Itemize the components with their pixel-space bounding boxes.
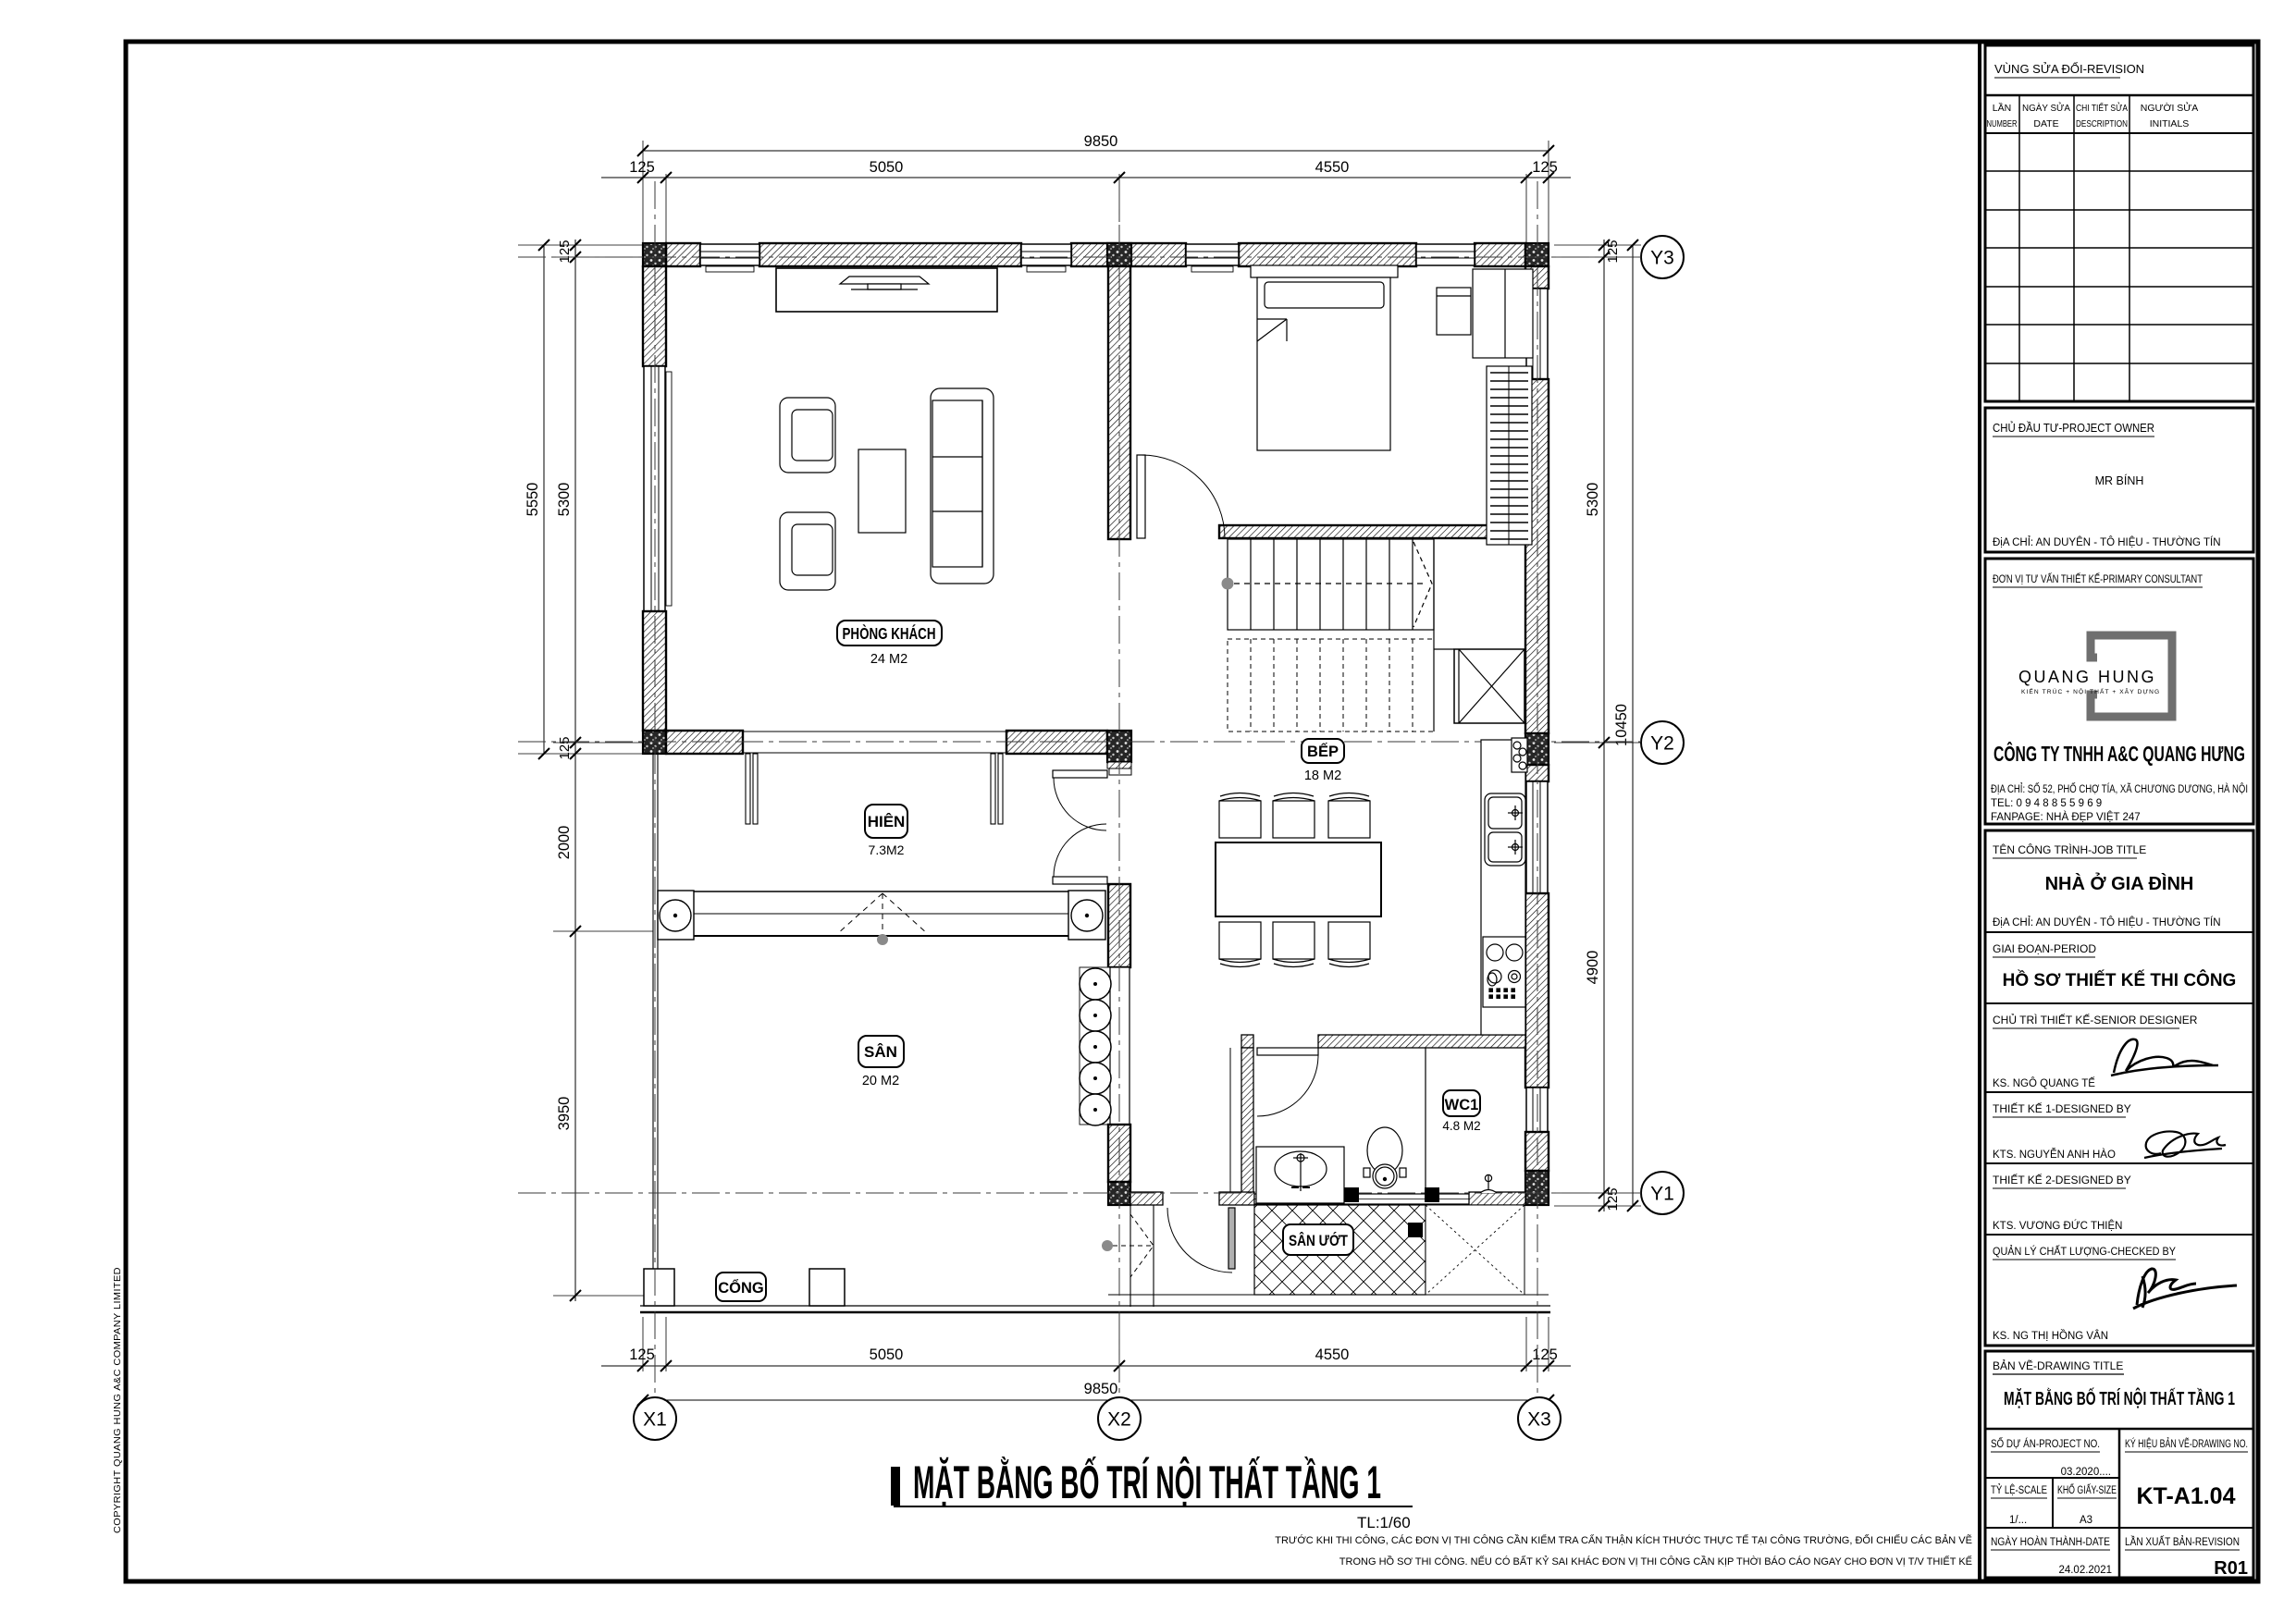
- svg-text:TEL: 0 9 4 8 8 5 5 9 6 9: TEL: 0 9 4 8 8 5 5 9 6 9: [1991, 798, 2102, 809]
- svg-text:VÙNG SỬA ĐỔI-REVISION: VÙNG SỬA ĐỔI-REVISION: [1994, 62, 2144, 76]
- svg-text:5550: 5550: [525, 483, 541, 517]
- svg-text:PHÒNG KHÁCH: PHÒNG KHÁCH: [843, 623, 936, 643]
- svg-text:SÂN: SÂN: [864, 1043, 897, 1061]
- svg-text:NHÀ Ở GIA ĐÌNH: NHÀ Ở GIA ĐÌNH: [2045, 872, 2194, 894]
- svg-text:SÂN ƯỚT: SÂN ƯỚT: [1289, 1232, 1348, 1249]
- svg-text:1/...: 1/...: [2009, 1515, 2027, 1526]
- svg-text:ĐỊA CHỈ: SỐ 52, PHỐ CHỢ TÍA, X: ĐỊA CHỈ: SỐ 52, PHỐ CHỢ TÍA, XÃ CHƯƠNG D…: [1991, 782, 2248, 795]
- svg-text:KHỔ GIẤY-SIZE: KHỔ GIẤY-SIZE: [2057, 1484, 2117, 1496]
- svg-text:4900: 4900: [1585, 951, 1601, 985]
- svg-text:R01: R01: [2214, 1558, 2248, 1579]
- svg-text:BẢN VẼ-DRAWING TITLE: BẢN VẼ-DRAWING TITLE: [1993, 1359, 2123, 1372]
- svg-text:X1: X1: [643, 1409, 667, 1431]
- svg-text:A3: A3: [2080, 1515, 2092, 1526]
- svg-text:KT-A1.04: KT-A1.04: [2137, 1483, 2236, 1509]
- svg-text:20 M2: 20 M2: [862, 1074, 899, 1088]
- svg-text:Y1: Y1: [1650, 1184, 1674, 1205]
- svg-text:125: 125: [1605, 1187, 1621, 1211]
- svg-text:DESCRIPTION: DESCRIPTION: [2076, 118, 2128, 129]
- svg-text:24.02.2021: 24.02.2021: [2058, 1565, 2112, 1576]
- svg-text:4550: 4550: [1315, 159, 1350, 176]
- svg-text:KS. NG THỊ HỒNG VÂN: KS. NG THỊ HỒNG VÂN: [1993, 1330, 2108, 1342]
- svg-text:ĐƠN VỊ TƯ VẤN THIẾT KẾ-PRIMARY: ĐƠN VỊ TƯ VẤN THIẾT KẾ-PRIMARY CONSULTAN…: [1993, 572, 2203, 585]
- svg-text:ĐịA CHỈ: AN DUYÊN - TÔ HIỆU -: ĐịA CHỈ: AN DUYÊN - TÔ HIỆU - THƯỜNG TÍN: [1993, 916, 2221, 928]
- svg-text:TL:1/60: TL:1/60: [1357, 1514, 1411, 1531]
- svg-text:THIẾT KẾ 2-DESIGNED BY: THIẾT KẾ 2-DESIGNED BY: [1993, 1173, 2131, 1187]
- svg-text:QUẢN LÝ CHẤT LƯỢNG-CHECKED BY: QUẢN LÝ CHẤT LƯỢNG-CHECKED BY: [1993, 1244, 2176, 1258]
- svg-text:FANPAGE: NHÀ ĐẸP VIỆT 247: FANPAGE: NHÀ ĐẸP VIỆT 247: [1991, 811, 2141, 823]
- svg-text:TÊN CÔNG TRÌNH-JOB TITLE: TÊN CÔNG TRÌNH-JOB TITLE: [1993, 842, 2146, 856]
- svg-text:7.3M2: 7.3M2: [869, 842, 905, 857]
- svg-text:18 M2: 18 M2: [1304, 768, 1341, 783]
- svg-text:THIẾT KẾ 1-DESIGNED BY: THIẾT KẾ 1-DESIGNED BY: [1993, 1101, 2131, 1115]
- svg-text:CHI TIẾT SỬA: CHI TIẾT SỬA: [2076, 102, 2128, 114]
- svg-text:Y2: Y2: [1650, 733, 1674, 755]
- svg-text:KÝ HIỆU BẢN VẼ-DRAWING NO.: KÝ HIỆU BẢN VẼ-DRAWING NO.: [2125, 1438, 2248, 1450]
- svg-text:HIÊN: HIÊN: [868, 813, 906, 830]
- svg-text:125: 125: [1532, 1346, 1558, 1363]
- svg-text:BẾP: BẾP: [1307, 743, 1339, 760]
- svg-text:COPYRIGHT QUANG HUNG A&C COMPA: COPYRIGHT QUANG HUNG A&C COMPANY LIMITED: [112, 1267, 123, 1533]
- svg-text:LẦN: LẦN: [1993, 102, 2011, 114]
- svg-text:TỶ LỆ-SCALE: TỶ LỆ-SCALE: [1991, 1484, 2047, 1496]
- svg-text:KTS. VƯƠNG ĐỨC THIỆN: KTS. VƯƠNG ĐỨC THIỆN: [1993, 1220, 2122, 1232]
- svg-text:125: 125: [557, 240, 573, 263]
- svg-text:5050: 5050: [870, 159, 904, 176]
- svg-text:CHỦ ĐẦU TƯ-PROJECT OWNER: CHỦ ĐẦU TƯ-PROJECT OWNER: [1993, 421, 2154, 435]
- svg-text:SỐ DỰ ÁN-PROJECT NO.: SỐ DỰ ÁN-PROJECT NO.: [1991, 1437, 2100, 1450]
- svg-text:ĐịA CHỈ: AN DUYÊN - TÔ HIỆU -: ĐịA CHỈ: AN DUYÊN - TÔ HIỆU - THƯỜNG TÍN: [1993, 536, 2221, 548]
- svg-text:03.2020....: 03.2020....: [2061, 1467, 2111, 1478]
- svg-text:KS. NGÔ QUANG TẾ: KS. NGÔ QUANG TẾ: [1993, 1077, 2095, 1089]
- svg-text:MẶT BẰNG BỐ TRÍ NỘI THẤT TẦNG: MẶT BẰNG BỐ TRÍ NỘI THẤT TẦNG 1: [2004, 1387, 2235, 1409]
- svg-text:GIAI ĐOẠN-PERIOD: GIAI ĐOẠN-PERIOD: [1993, 942, 2096, 955]
- svg-text:9850: 9850: [1084, 1381, 1118, 1397]
- svg-text:CHỦ TRÌ THIẾT KẾ-SENIOR DESIGN: CHỦ TRÌ THIẾT KẾ-SENIOR DESIGNER: [1993, 1013, 2198, 1027]
- svg-text:5300: 5300: [1585, 483, 1601, 517]
- svg-text:9850: 9850: [1084, 133, 1118, 150]
- svg-text:NGƯỜI SỬA: NGƯỜI SỬA: [2141, 102, 2199, 114]
- svg-text:125: 125: [1532, 159, 1558, 176]
- svg-text:125: 125: [629, 159, 655, 176]
- svg-text:X2: X2: [1107, 1409, 1131, 1431]
- svg-text:Y3: Y3: [1650, 248, 1674, 269]
- svg-text:4550: 4550: [1315, 1346, 1350, 1363]
- svg-text:24 M2: 24 M2: [870, 652, 907, 667]
- svg-text:125: 125: [629, 1346, 655, 1363]
- svg-text:MR BÍNH: MR BÍNH: [2095, 473, 2144, 487]
- svg-text:X3: X3: [1527, 1409, 1551, 1431]
- svg-text:NUMBER: NUMBER: [1987, 118, 2018, 129]
- svg-text:CỔNG: CỔNG: [718, 1279, 764, 1297]
- svg-text:TRƯỚC KHI THI CÔNG, CÁC ĐƠN VỊ: TRƯỚC KHI THI CÔNG, CÁC ĐƠN VỊ THI CÔNG …: [1275, 1533, 1972, 1546]
- svg-text:INITIALS: INITIALS: [2150, 118, 2190, 129]
- svg-text:NGÀY SỬA: NGÀY SỬA: [2022, 102, 2070, 114]
- svg-text:125: 125: [1605, 240, 1621, 263]
- svg-text:NGÀY HOÀN THÀNH-DATE: NGÀY HOÀN THÀNH-DATE: [1991, 1536, 2110, 1548]
- svg-text:4.8 M2: 4.8 M2: [1442, 1119, 1480, 1133]
- svg-text:5050: 5050: [870, 1346, 904, 1363]
- svg-text:QUANG HUNG: QUANG HUNG: [2018, 668, 2156, 686]
- svg-text:CÔNG TY TNHH A&C QUANG HƯNG: CÔNG TY TNHH A&C QUANG HƯNG: [1994, 741, 2245, 766]
- svg-text:HỒ SƠ THIẾT KẾ THI CÔNG: HỒ SƠ THIẾT KẾ THI CÔNG: [2003, 970, 2237, 990]
- svg-text:3950: 3950: [556, 1097, 573, 1131]
- svg-text:WC1: WC1: [1445, 1097, 1479, 1113]
- svg-text:KTS. NGUYỄN ANH HÀO: KTS. NGUYỄN ANH HÀO: [1993, 1149, 2116, 1161]
- svg-text:2000: 2000: [556, 826, 573, 860]
- svg-text:5300: 5300: [556, 483, 573, 517]
- svg-text:TRONG HỒ SƠ THI CÔNG. NẾU CÓ B: TRONG HỒ SƠ THI CÔNG. NẾU CÓ BẤT KỶ SAI …: [1339, 1555, 1972, 1568]
- svg-text:MẶT BẰNG BỐ TRÍ NỘI THẤT TẦNG: MẶT BẰNG BỐ TRÍ NỘI THẤT TẦNG 1: [913, 1456, 1381, 1508]
- svg-text:DATE: DATE: [2033, 118, 2058, 129]
- svg-text:LẦN XUẤT BẢN-REVISION: LẦN XUẤT BẢN-REVISION: [2125, 1536, 2240, 1548]
- svg-text:10450: 10450: [1613, 704, 1630, 746]
- svg-text:125: 125: [557, 736, 573, 759]
